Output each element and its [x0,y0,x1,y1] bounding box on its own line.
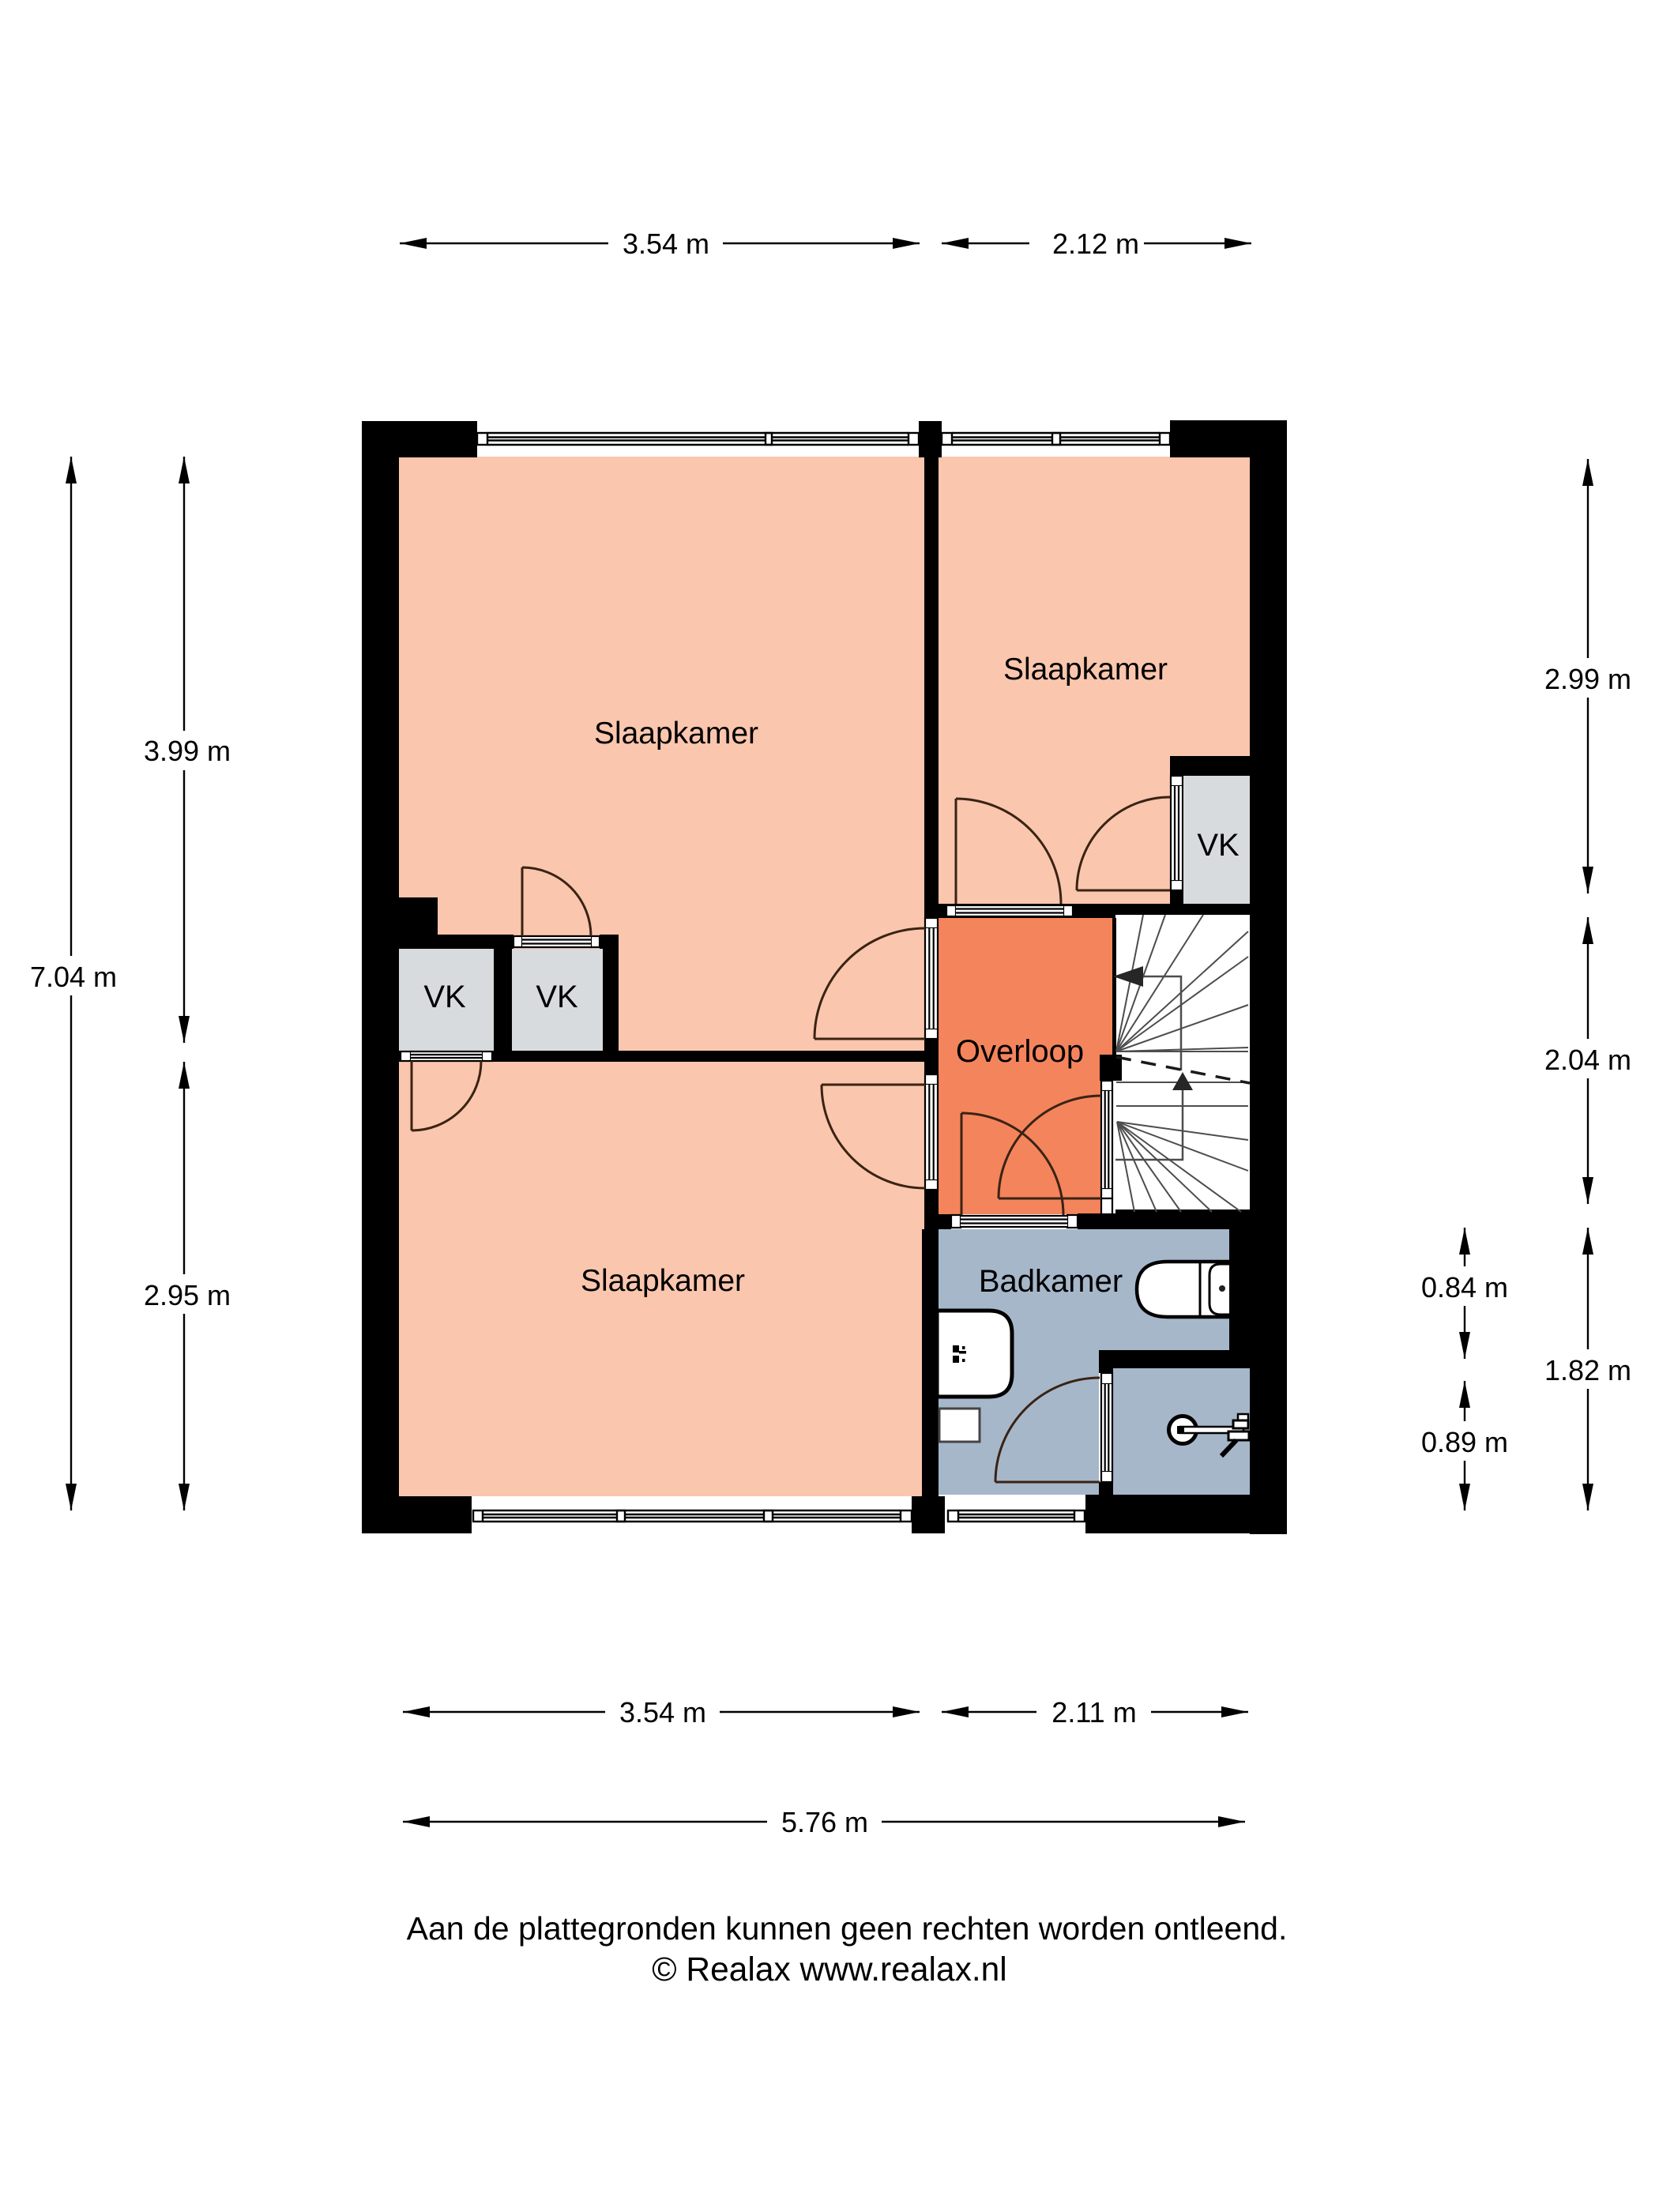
svg-text:Aan de plattegronden kunnen ge: Aan de plattegronden kunnen geen rechten… [407,1910,1288,1947]
svg-text:2.11 m: 2.11 m [1051,1696,1136,1729]
svg-text:© Realax www.realax.nl: © Realax www.realax.nl [652,1951,1006,1988]
svg-text:2.04 m: 2.04 m [1544,1044,1631,1076]
svg-text:Slaapkamer: Slaapkamer [1003,653,1168,687]
svg-text:2.99 m: 2.99 m [1544,663,1631,695]
svg-text:Badkamer: Badkamer [979,1264,1123,1299]
svg-text:Slaapkamer: Slaapkamer [594,717,758,750]
svg-text:3.54 m: 3.54 m [623,228,709,260]
svg-text:5.76 m: 5.76 m [781,1806,868,1838]
svg-text:Slaapkamer: Slaapkamer [581,1264,745,1298]
svg-text:1.82 m: 1.82 m [1544,1354,1631,1386]
svg-text:VK: VK [1197,828,1240,863]
svg-text:Overloop: Overloop [956,1034,1084,1069]
svg-text:7.04 m: 7.04 m [30,961,117,993]
svg-text:VK: VK [423,980,466,1014]
svg-text:3.54 m: 3.54 m [619,1696,706,1729]
svg-text:0.89 m: 0.89 m [1421,1426,1508,1458]
svg-text:2.95 m: 2.95 m [144,1279,231,1311]
svg-text:2.12 m: 2.12 m [1052,228,1139,260]
svg-text:VK: VK [536,980,578,1014]
svg-text:0.84 m: 0.84 m [1421,1271,1508,1303]
svg-text:3.99 m: 3.99 m [144,735,231,767]
